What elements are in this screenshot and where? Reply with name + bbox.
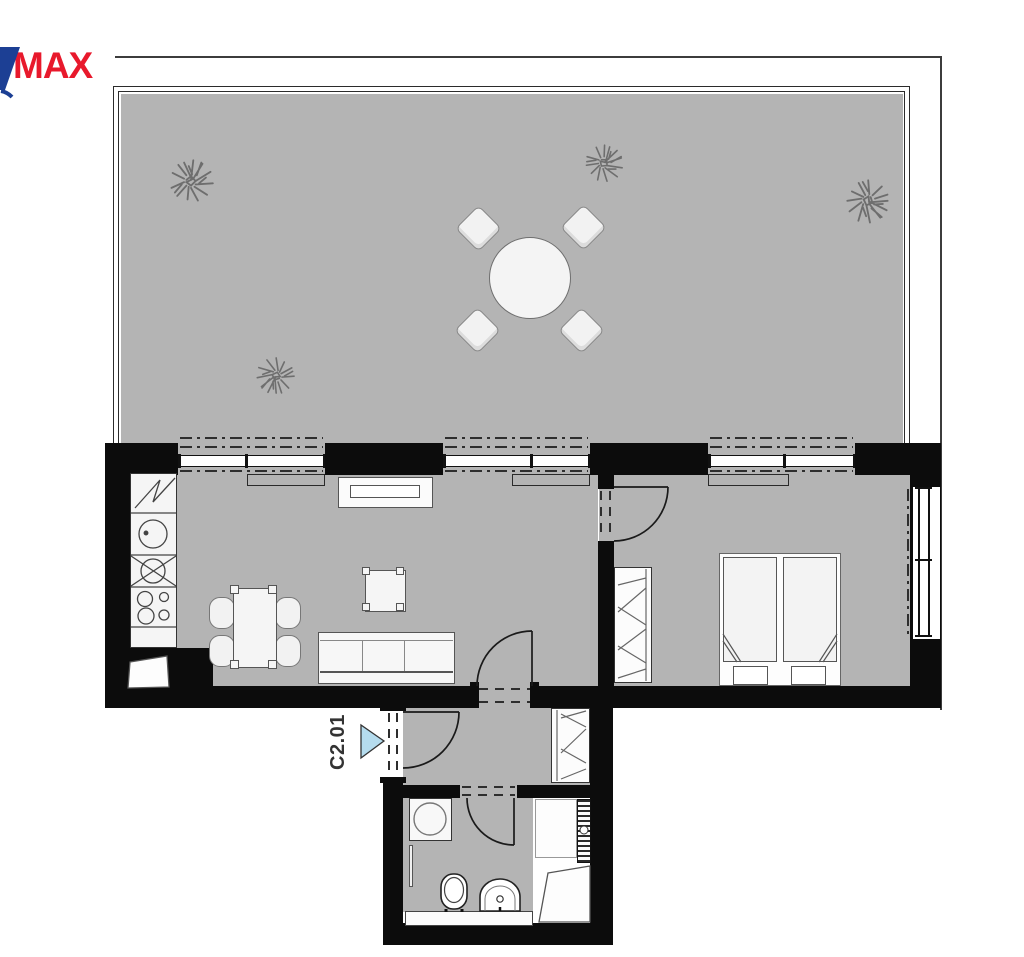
door-jamb <box>380 705 406 711</box>
window-icon <box>178 443 325 475</box>
opening-dash <box>462 786 515 788</box>
round-table-icon <box>489 237 571 319</box>
unit-label: C2.01 <box>327 701 354 783</box>
window-glass <box>443 455 590 467</box>
radiator-inner <box>350 485 420 498</box>
door-jamb <box>380 777 406 783</box>
table-corner <box>230 660 239 669</box>
opening-dash <box>462 794 515 796</box>
lower-wall-right <box>590 708 613 925</box>
window-glass <box>708 455 855 467</box>
bath-partition-left <box>403 785 460 798</box>
opening-dash <box>600 491 602 539</box>
table-corner <box>396 567 404 575</box>
partition-bedroom-top <box>598 471 614 489</box>
window-glass <box>178 455 325 467</box>
opening-dash <box>396 713 398 775</box>
window-icon <box>708 443 855 475</box>
bath-cabinet <box>535 799 577 858</box>
double-bed-icon <box>723 557 777 662</box>
opening-dash <box>609 491 611 539</box>
bath-shelf <box>405 911 533 926</box>
bath-wall-element <box>409 845 413 887</box>
table-corner <box>396 603 404 611</box>
opening-dash <box>479 688 530 690</box>
pillow-icon <box>791 666 826 685</box>
table-corner <box>268 585 277 594</box>
dining-table-icon <box>233 588 277 668</box>
entrance-opening <box>383 708 403 780</box>
door-jamb <box>470 682 479 708</box>
lower-wall-bottom <box>383 923 613 945</box>
wardrobe-icon <box>614 567 652 683</box>
table-corner <box>230 585 239 594</box>
kitchen-pier <box>130 648 213 686</box>
window-slide-line <box>180 437 323 439</box>
double-bed-icon <box>783 557 837 662</box>
table-corner <box>268 660 277 669</box>
lower-wall-left <box>383 780 403 925</box>
dining-chair-icon <box>275 635 301 667</box>
wardrobe-icon <box>551 708 590 783</box>
wall-bottom-left <box>105 686 477 708</box>
window-glass <box>918 489 920 637</box>
kitchen-counter <box>130 473 177 648</box>
sofa-line <box>362 641 363 671</box>
dining-chair-icon <box>209 597 235 629</box>
window-slide-line <box>907 489 909 637</box>
floor-plan-canvas: MAX <box>0 0 1024 957</box>
entrance-arrow-icon <box>361 725 384 758</box>
window-slide-line <box>445 437 588 439</box>
bath-partition-right <box>517 785 590 798</box>
table-corner <box>362 603 370 611</box>
sofa-line <box>320 640 453 641</box>
door-jamb <box>530 682 539 708</box>
sofa-line <box>320 671 453 673</box>
wall-bottom-right <box>532 686 941 708</box>
logo-wordmark: MAX <box>13 45 92 87</box>
table-corner <box>362 567 370 575</box>
pillow-icon <box>733 666 768 685</box>
partition-bedroom <box>598 541 614 686</box>
dining-chair-icon <box>275 597 301 629</box>
wall-left <box>105 443 130 708</box>
sofa-line <box>404 641 405 671</box>
towel-radiator-icon <box>577 799 591 863</box>
washing-machine-icon <box>409 798 452 841</box>
window-step <box>708 474 789 486</box>
window-slide-line <box>710 437 853 439</box>
window-step <box>512 474 590 486</box>
window-icon <box>443 443 590 475</box>
opening-dash <box>388 713 390 775</box>
window-step <box>247 474 325 486</box>
frame-top-line <box>115 56 942 58</box>
opening-dash <box>479 701 530 703</box>
